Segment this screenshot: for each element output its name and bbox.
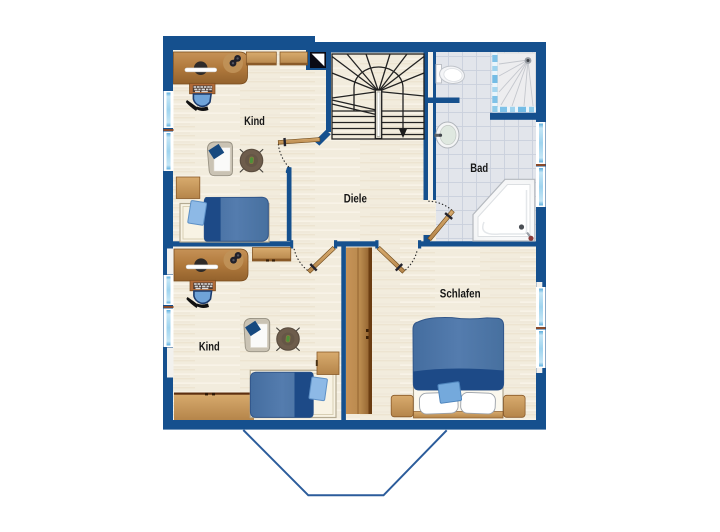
svg-text:Bad: Bad	[470, 161, 488, 175]
svg-text:Kind: Kind	[199, 339, 220, 353]
svg-text:Schlafen: Schlafen	[440, 286, 481, 300]
svg-text:Diele: Diele	[344, 192, 368, 206]
svg-text:Kind: Kind	[244, 114, 265, 128]
